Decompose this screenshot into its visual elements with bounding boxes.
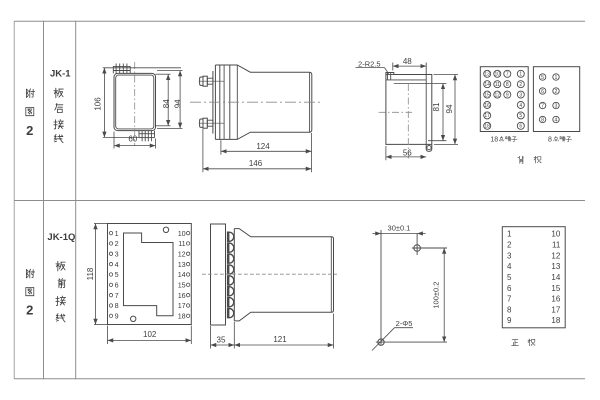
svg-text:3: 3: [115, 249, 119, 258]
svg-text:2-R2.5: 2-R2.5: [358, 59, 381, 68]
svg-text:100±0.2: 100±0.2: [431, 282, 440, 309]
svg-text:5: 5: [507, 273, 512, 282]
svg-text:3: 3: [519, 92, 522, 98]
svg-text:81: 81: [432, 102, 441, 111]
svg-text:1: 1: [555, 75, 558, 81]
svg-text:8: 8: [541, 117, 544, 123]
svg-text:12: 12: [178, 249, 186, 258]
svg-text:10: 10: [178, 229, 186, 238]
svg-text:94: 94: [174, 99, 183, 108]
svg-text:3: 3: [507, 251, 512, 260]
svg-text:14: 14: [178, 270, 186, 279]
svg-text:18: 18: [178, 312, 186, 321]
svg-text:4: 4: [519, 103, 522, 109]
svg-text:JK-1Q: JK-1Q: [47, 232, 75, 243]
svg-text:106: 106: [93, 97, 102, 111]
svg-text:1: 1: [115, 229, 119, 238]
svg-text:8: 8: [506, 82, 509, 88]
svg-text:7: 7: [541, 103, 544, 109]
svg-text:102: 102: [143, 330, 157, 339]
svg-text:4: 4: [507, 262, 512, 271]
svg-text:2: 2: [519, 82, 522, 88]
svg-text:5: 5: [519, 113, 522, 119]
svg-text:3: 3: [555, 103, 558, 109]
svg-text:5: 5: [541, 75, 544, 81]
svg-text:9: 9: [115, 312, 119, 321]
svg-text:14: 14: [484, 82, 490, 88]
svg-text:13: 13: [178, 260, 186, 269]
svg-text:8: 8: [507, 305, 512, 314]
svg-text:124: 124: [256, 142, 270, 151]
svg-text:84: 84: [162, 99, 171, 108]
svg-text:6: 6: [507, 284, 512, 293]
svg-text:10: 10: [495, 72, 501, 78]
svg-text:35: 35: [217, 336, 226, 345]
svg-text:2: 2: [507, 241, 512, 250]
svg-text:14: 14: [551, 273, 560, 282]
svg-text:16: 16: [178, 291, 186, 300]
svg-text:2: 2: [26, 303, 33, 318]
svg-text:18: 18: [551, 316, 560, 325]
svg-text:30±0.1: 30±0.1: [388, 224, 411, 233]
svg-text:4: 4: [115, 260, 119, 269]
svg-text:2: 2: [115, 239, 119, 248]
svg-text:16: 16: [484, 103, 490, 109]
svg-text:1: 1: [519, 72, 522, 78]
svg-text:17: 17: [178, 301, 186, 310]
svg-text:11: 11: [552, 241, 561, 250]
svg-text:11: 11: [495, 82, 500, 88]
svg-text:18: 18: [484, 124, 490, 130]
svg-text:146: 146: [249, 159, 263, 168]
svg-text:6: 6: [519, 124, 522, 130]
svg-text:13: 13: [484, 72, 490, 78]
svg-text:7: 7: [115, 291, 119, 300]
svg-text:4: 4: [555, 117, 558, 123]
svg-text:7: 7: [506, 72, 509, 78]
svg-text:8: 8: [115, 301, 119, 310]
svg-text:94: 94: [445, 104, 454, 113]
svg-text:8: 8: [548, 137, 552, 144]
svg-text:60: 60: [128, 135, 137, 144]
svg-text:16: 16: [551, 295, 560, 304]
svg-text:118: 118: [86, 267, 95, 280]
svg-text:2: 2: [555, 89, 558, 95]
svg-text:9: 9: [507, 316, 512, 325]
svg-text:13: 13: [551, 262, 560, 271]
svg-text:17: 17: [484, 113, 490, 119]
svg-text:2-Φ5: 2-Φ5: [396, 319, 413, 328]
svg-text:15: 15: [178, 281, 186, 290]
svg-text:17: 17: [551, 305, 560, 314]
svg-text:121: 121: [273, 335, 287, 344]
svg-text:18: 18: [490, 137, 498, 144]
svg-text:10: 10: [551, 230, 560, 239]
svg-text:1: 1: [507, 230, 512, 239]
svg-text:11: 11: [178, 239, 185, 248]
svg-text:12: 12: [551, 251, 560, 260]
svg-text:6: 6: [115, 281, 119, 290]
svg-text:15: 15: [484, 92, 490, 98]
svg-text:15: 15: [551, 284, 560, 293]
svg-text:5: 5: [115, 270, 119, 279]
svg-text:7: 7: [507, 295, 512, 304]
svg-text:9: 9: [506, 92, 509, 98]
svg-text:12: 12: [495, 92, 501, 98]
svg-text:6: 6: [541, 89, 544, 95]
svg-text:2: 2: [26, 123, 33, 138]
svg-text:56: 56: [403, 148, 412, 157]
svg-text:JK-1: JK-1: [50, 68, 71, 79]
svg-text:48: 48: [403, 57, 412, 66]
